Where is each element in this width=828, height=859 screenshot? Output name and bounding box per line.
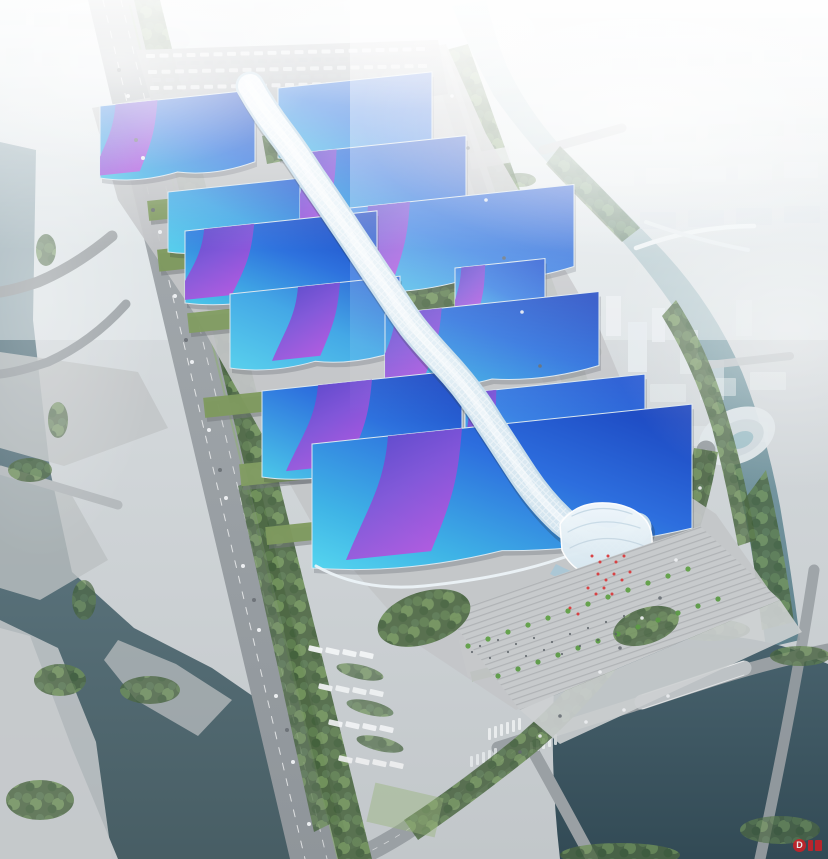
crosswalk — [482, 752, 485, 763]
red-flags — [623, 555, 626, 558]
crosswalk — [500, 724, 503, 736]
red-flags — [621, 579, 624, 582]
cars — [190, 360, 194, 364]
riverbank-trees — [72, 580, 96, 620]
red-flags — [603, 587, 606, 590]
cars — [538, 734, 542, 738]
palm-trees — [715, 596, 720, 601]
terrace-trees — [6, 780, 74, 820]
scene-root — [0, 0, 828, 859]
palm-trees — [665, 573, 670, 578]
palm-trees — [625, 587, 630, 592]
people — [597, 639, 599, 641]
cars — [666, 694, 670, 698]
red-flags — [629, 571, 632, 574]
palm-trees — [465, 643, 470, 648]
cars — [618, 646, 622, 650]
red-flags — [591, 555, 594, 558]
red-flags — [569, 607, 572, 610]
palm-trees — [505, 629, 510, 634]
red-flags — [577, 613, 580, 616]
people — [471, 651, 473, 653]
aerial-rendering-exhibition-center: D — [0, 0, 828, 859]
people — [515, 643, 517, 645]
palm-trees — [495, 673, 500, 678]
palm-trees — [485, 636, 490, 641]
cars — [622, 708, 626, 712]
red-flags — [615, 561, 618, 564]
crosswalk — [518, 718, 521, 730]
red-flags — [587, 587, 590, 590]
people — [623, 615, 625, 617]
palm-trees — [555, 652, 560, 657]
cars — [598, 670, 602, 674]
people — [561, 653, 563, 655]
people — [543, 649, 545, 651]
watermark-logo: D — [793, 839, 806, 852]
people — [533, 637, 535, 639]
people — [479, 645, 481, 647]
palm-trees — [515, 666, 520, 671]
crosswalk — [476, 754, 479, 765]
palm-trees — [535, 659, 540, 664]
terrace-trees — [34, 664, 86, 696]
cars — [291, 760, 295, 764]
palm-trees — [585, 601, 590, 606]
red-flags — [599, 561, 602, 564]
cars — [257, 628, 261, 632]
scene-canvas — [0, 0, 828, 859]
people — [587, 627, 589, 629]
watermark-glyphs — [808, 840, 822, 851]
crosswalk — [494, 726, 497, 738]
palm-trees — [545, 615, 550, 620]
red-flags — [607, 555, 610, 558]
people — [507, 651, 509, 653]
people — [489, 657, 491, 659]
people — [615, 633, 617, 635]
cars — [173, 294, 177, 298]
cars — [307, 822, 311, 826]
people — [579, 645, 581, 647]
red-flags — [605, 579, 608, 582]
crosswalk — [488, 728, 491, 740]
people — [569, 633, 571, 635]
crosswalk — [512, 720, 515, 732]
palm-trees — [695, 603, 700, 608]
red-flags — [595, 593, 598, 596]
red-flags — [597, 573, 600, 576]
crosswalk — [506, 722, 509, 734]
cars — [274, 694, 278, 698]
cars — [285, 728, 289, 732]
cars — [518, 750, 522, 754]
palm-trees — [635, 624, 640, 629]
crosswalk — [470, 756, 473, 767]
palm-trees — [675, 610, 680, 615]
watermark: D — [793, 839, 822, 852]
terrace-trees — [120, 676, 180, 704]
cars — [184, 338, 188, 342]
cars — [558, 714, 562, 718]
cars — [241, 564, 245, 568]
cars — [224, 496, 228, 500]
cars — [658, 596, 662, 600]
cars — [640, 616, 644, 620]
people — [497, 639, 499, 641]
red-flags — [611, 593, 614, 596]
palm-trees — [685, 566, 690, 571]
palm-trees — [655, 617, 660, 622]
pond-bank-trees — [770, 646, 828, 666]
cars — [207, 428, 211, 432]
people — [605, 621, 607, 623]
people — [551, 641, 553, 643]
cars — [674, 558, 678, 562]
cars — [698, 486, 702, 490]
red-flags — [613, 573, 616, 576]
people — [525, 655, 527, 657]
palm-trees — [645, 580, 650, 585]
palm-trees — [525, 622, 530, 627]
cars — [584, 720, 588, 724]
cars — [218, 468, 222, 472]
cars — [252, 598, 256, 602]
palm-trees — [605, 594, 610, 599]
